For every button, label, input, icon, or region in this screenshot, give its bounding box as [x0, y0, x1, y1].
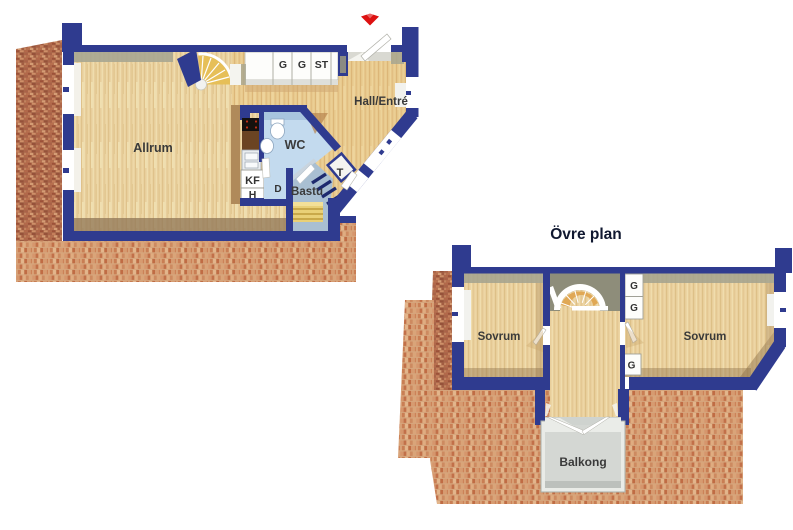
- svg-text:Hall/Entré: Hall/Entré: [354, 96, 408, 108]
- svg-text:D: D: [274, 184, 281, 195]
- svg-text:Sovrum: Sovrum: [478, 331, 521, 343]
- svg-text:Sovrum: Sovrum: [684, 331, 727, 343]
- svg-text:G: G: [279, 59, 287, 71]
- svg-text:G: G: [628, 361, 636, 372]
- svg-text:G: G: [298, 59, 306, 71]
- svg-text:ST: ST: [315, 59, 329, 71]
- svg-text:Balkong: Balkong: [559, 455, 606, 469]
- svg-text:Övre plan: Övre plan: [550, 226, 622, 243]
- svg-text:WC: WC: [285, 138, 306, 152]
- svg-text:Allrum: Allrum: [133, 141, 173, 155]
- svg-text:T: T: [337, 167, 344, 179]
- svg-text:G: G: [630, 281, 638, 292]
- svg-text:KF: KF: [245, 175, 260, 187]
- svg-text:Bastu: Bastu: [291, 186, 323, 198]
- svg-text:G: G: [630, 303, 638, 314]
